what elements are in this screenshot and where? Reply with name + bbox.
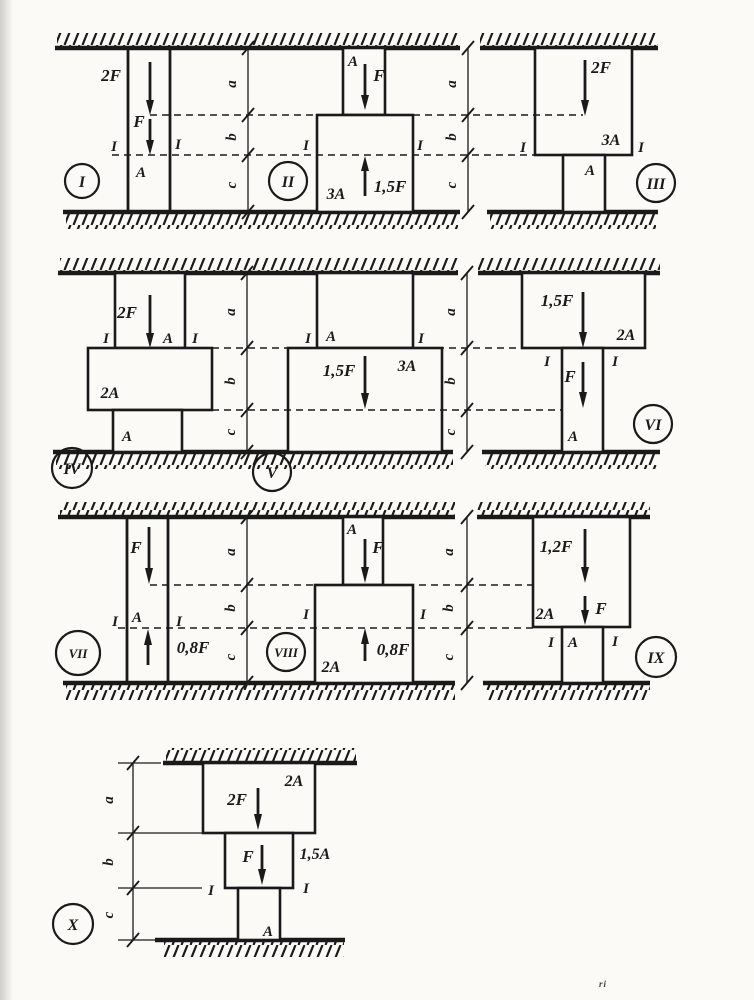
force-label: 1,5F [541, 291, 574, 310]
section-label: I [302, 607, 310, 623]
dim-label-a: a [224, 80, 240, 88]
force-label: F [241, 847, 254, 866]
ceiling-row1 [55, 33, 658, 48]
ceiling-row2 [58, 258, 660, 273]
section-label: I [611, 354, 619, 370]
roman-numeral: III [646, 176, 666, 193]
section-label: I [304, 331, 312, 347]
force-label: 1,5F [374, 177, 407, 196]
dim-label-a: a [101, 796, 117, 804]
roman-numeral: IV [63, 461, 82, 478]
dim-label-c: c [224, 181, 240, 188]
dim-label-c: c [223, 653, 239, 660]
force-label: F [372, 66, 385, 85]
force-label: 0,8F [377, 640, 410, 659]
dim-label-a: a [444, 80, 460, 88]
area-label: 2A [284, 773, 304, 790]
force-label: 2F [116, 303, 138, 322]
dimension-line-row3-left: a b c [223, 510, 253, 690]
dim-label-a: a [443, 308, 459, 316]
area-label: A [131, 610, 142, 626]
roman-numeral: II [281, 174, 295, 191]
dim-label-c: c [443, 428, 459, 435]
ceiling-row3 [58, 502, 650, 517]
area-label: A [135, 165, 146, 181]
force-arrow-down [146, 119, 154, 155]
area-label: 2A [616, 327, 636, 344]
force-label: F [563, 367, 576, 386]
dim-label-b: b [441, 604, 457, 612]
section-label: I [419, 607, 427, 623]
row-3: a b c a b c F I A I 0,8F VII [56, 502, 676, 700]
section-label: I [102, 331, 110, 347]
dim-label-c: c [444, 181, 460, 188]
force-label: F [132, 112, 145, 131]
force-label: 1,5F [323, 361, 356, 380]
force-label: 2F [100, 66, 122, 85]
dim-label-a: a [441, 548, 457, 556]
stepped-bars-figure: a b c a b c 2F F I I A I [0, 0, 754, 1000]
section-label: I [547, 635, 555, 651]
figure-page: a b c a b c 2F F I I A I [0, 0, 754, 1000]
variant-circle-III: III [637, 164, 675, 202]
section-label: I [611, 634, 619, 650]
section-label: I [207, 883, 215, 899]
section-label: I [302, 138, 310, 154]
force-arrow-up [144, 629, 152, 665]
dimension-line-row1-right: a b c [444, 41, 474, 219]
variant-circle-II: II [269, 162, 307, 200]
dim-label-b: b [223, 377, 239, 385]
dim-label-b: b [101, 858, 117, 866]
section-label: I [110, 139, 118, 155]
force-label: 1,2F [540, 537, 573, 556]
area-label: 2A [535, 606, 555, 623]
area-label: A [262, 924, 273, 940]
section-label: I [519, 140, 527, 156]
area-label: A [162, 331, 173, 347]
variant-circle-I: I [65, 164, 99, 198]
floor-row3 [63, 683, 650, 700]
variant-circle-X: X [53, 904, 93, 944]
force-label: 2F [226, 790, 248, 809]
scan-artifact: ri [599, 979, 607, 989]
area-label: A [567, 429, 578, 445]
variant-circle-VIII: VIII [267, 633, 305, 671]
area-label: 3A [397, 358, 417, 375]
floor-row1 [63, 212, 658, 229]
row-2: a b c a b c 2F I A I 2A A IV [52, 258, 672, 491]
ceiling-X [163, 748, 357, 763]
section-label: I [175, 614, 183, 630]
force-label: F [594, 599, 607, 618]
force-arrow-down [146, 62, 154, 115]
area-label: 3A [601, 132, 621, 149]
dim-label-c: c [441, 653, 457, 660]
variant-circle-VII: VII [56, 631, 100, 675]
area-label: 3A [326, 186, 346, 203]
dim-label-b: b [224, 133, 240, 141]
section-label: I [416, 138, 424, 154]
dim-label-b: b [443, 377, 459, 385]
force-label: 2F [590, 58, 612, 77]
force-arrow-down [145, 527, 153, 584]
dim-label-b: b [444, 133, 460, 141]
area-label: A [584, 163, 595, 179]
area-label: 2A [100, 385, 120, 402]
roman-numeral: I [78, 174, 86, 191]
roman-numeral: V [267, 465, 279, 482]
diagram-III [535, 48, 632, 212]
section-label: I [637, 140, 645, 156]
area-label: A [346, 522, 357, 538]
force-label: 0,8F [177, 638, 210, 657]
variant-circle-VI: VI [634, 405, 672, 443]
dim-label-a: a [223, 308, 239, 316]
roman-numeral: IX [647, 650, 665, 667]
area-label: A [567, 635, 578, 651]
dim-label-c: c [101, 911, 117, 918]
roman-numeral: VIII [274, 645, 299, 660]
dimension-line-row2-right: a b c [443, 266, 473, 459]
floor-X [155, 940, 345, 957]
diagram-VII-annotations: F I A I 0,8F VII [56, 527, 210, 675]
dimension-line-row1-left: a b c [224, 41, 254, 219]
row-1: a b c a b c 2F F I I A I [55, 33, 675, 229]
dim-label-a: a [223, 548, 239, 556]
diagram-X-group: a b c 2A 2F F 1,5A I I A X [53, 748, 357, 957]
diagram-I-annotations: 2F F I I A I [65, 62, 182, 198]
dimension-line-row3-right: a b c [441, 510, 473, 690]
dimension-line-row2-left: a b c [223, 266, 253, 459]
area-label: A [325, 329, 336, 345]
area-label: 2A [321, 659, 341, 676]
section-label: I [302, 881, 310, 897]
dim-label-b: b [223, 604, 239, 612]
variant-circle-IX: IX [636, 637, 676, 677]
section-label: I [417, 331, 425, 347]
force-label: F [371, 538, 384, 557]
roman-numeral: VI [645, 417, 663, 434]
force-label: F [129, 538, 142, 557]
area-label: A [347, 54, 358, 70]
dim-label-c: c [223, 428, 239, 435]
section-label: I [174, 137, 182, 153]
section-label: I [543, 354, 551, 370]
area-label: A [121, 429, 132, 445]
section-label: I [111, 614, 119, 630]
area-label: 1,5A [300, 846, 331, 863]
roman-numeral: X [67, 917, 79, 934]
floor-row2 [53, 452, 660, 469]
roman-numeral: VII [69, 646, 89, 661]
section-label: I [191, 331, 199, 347]
